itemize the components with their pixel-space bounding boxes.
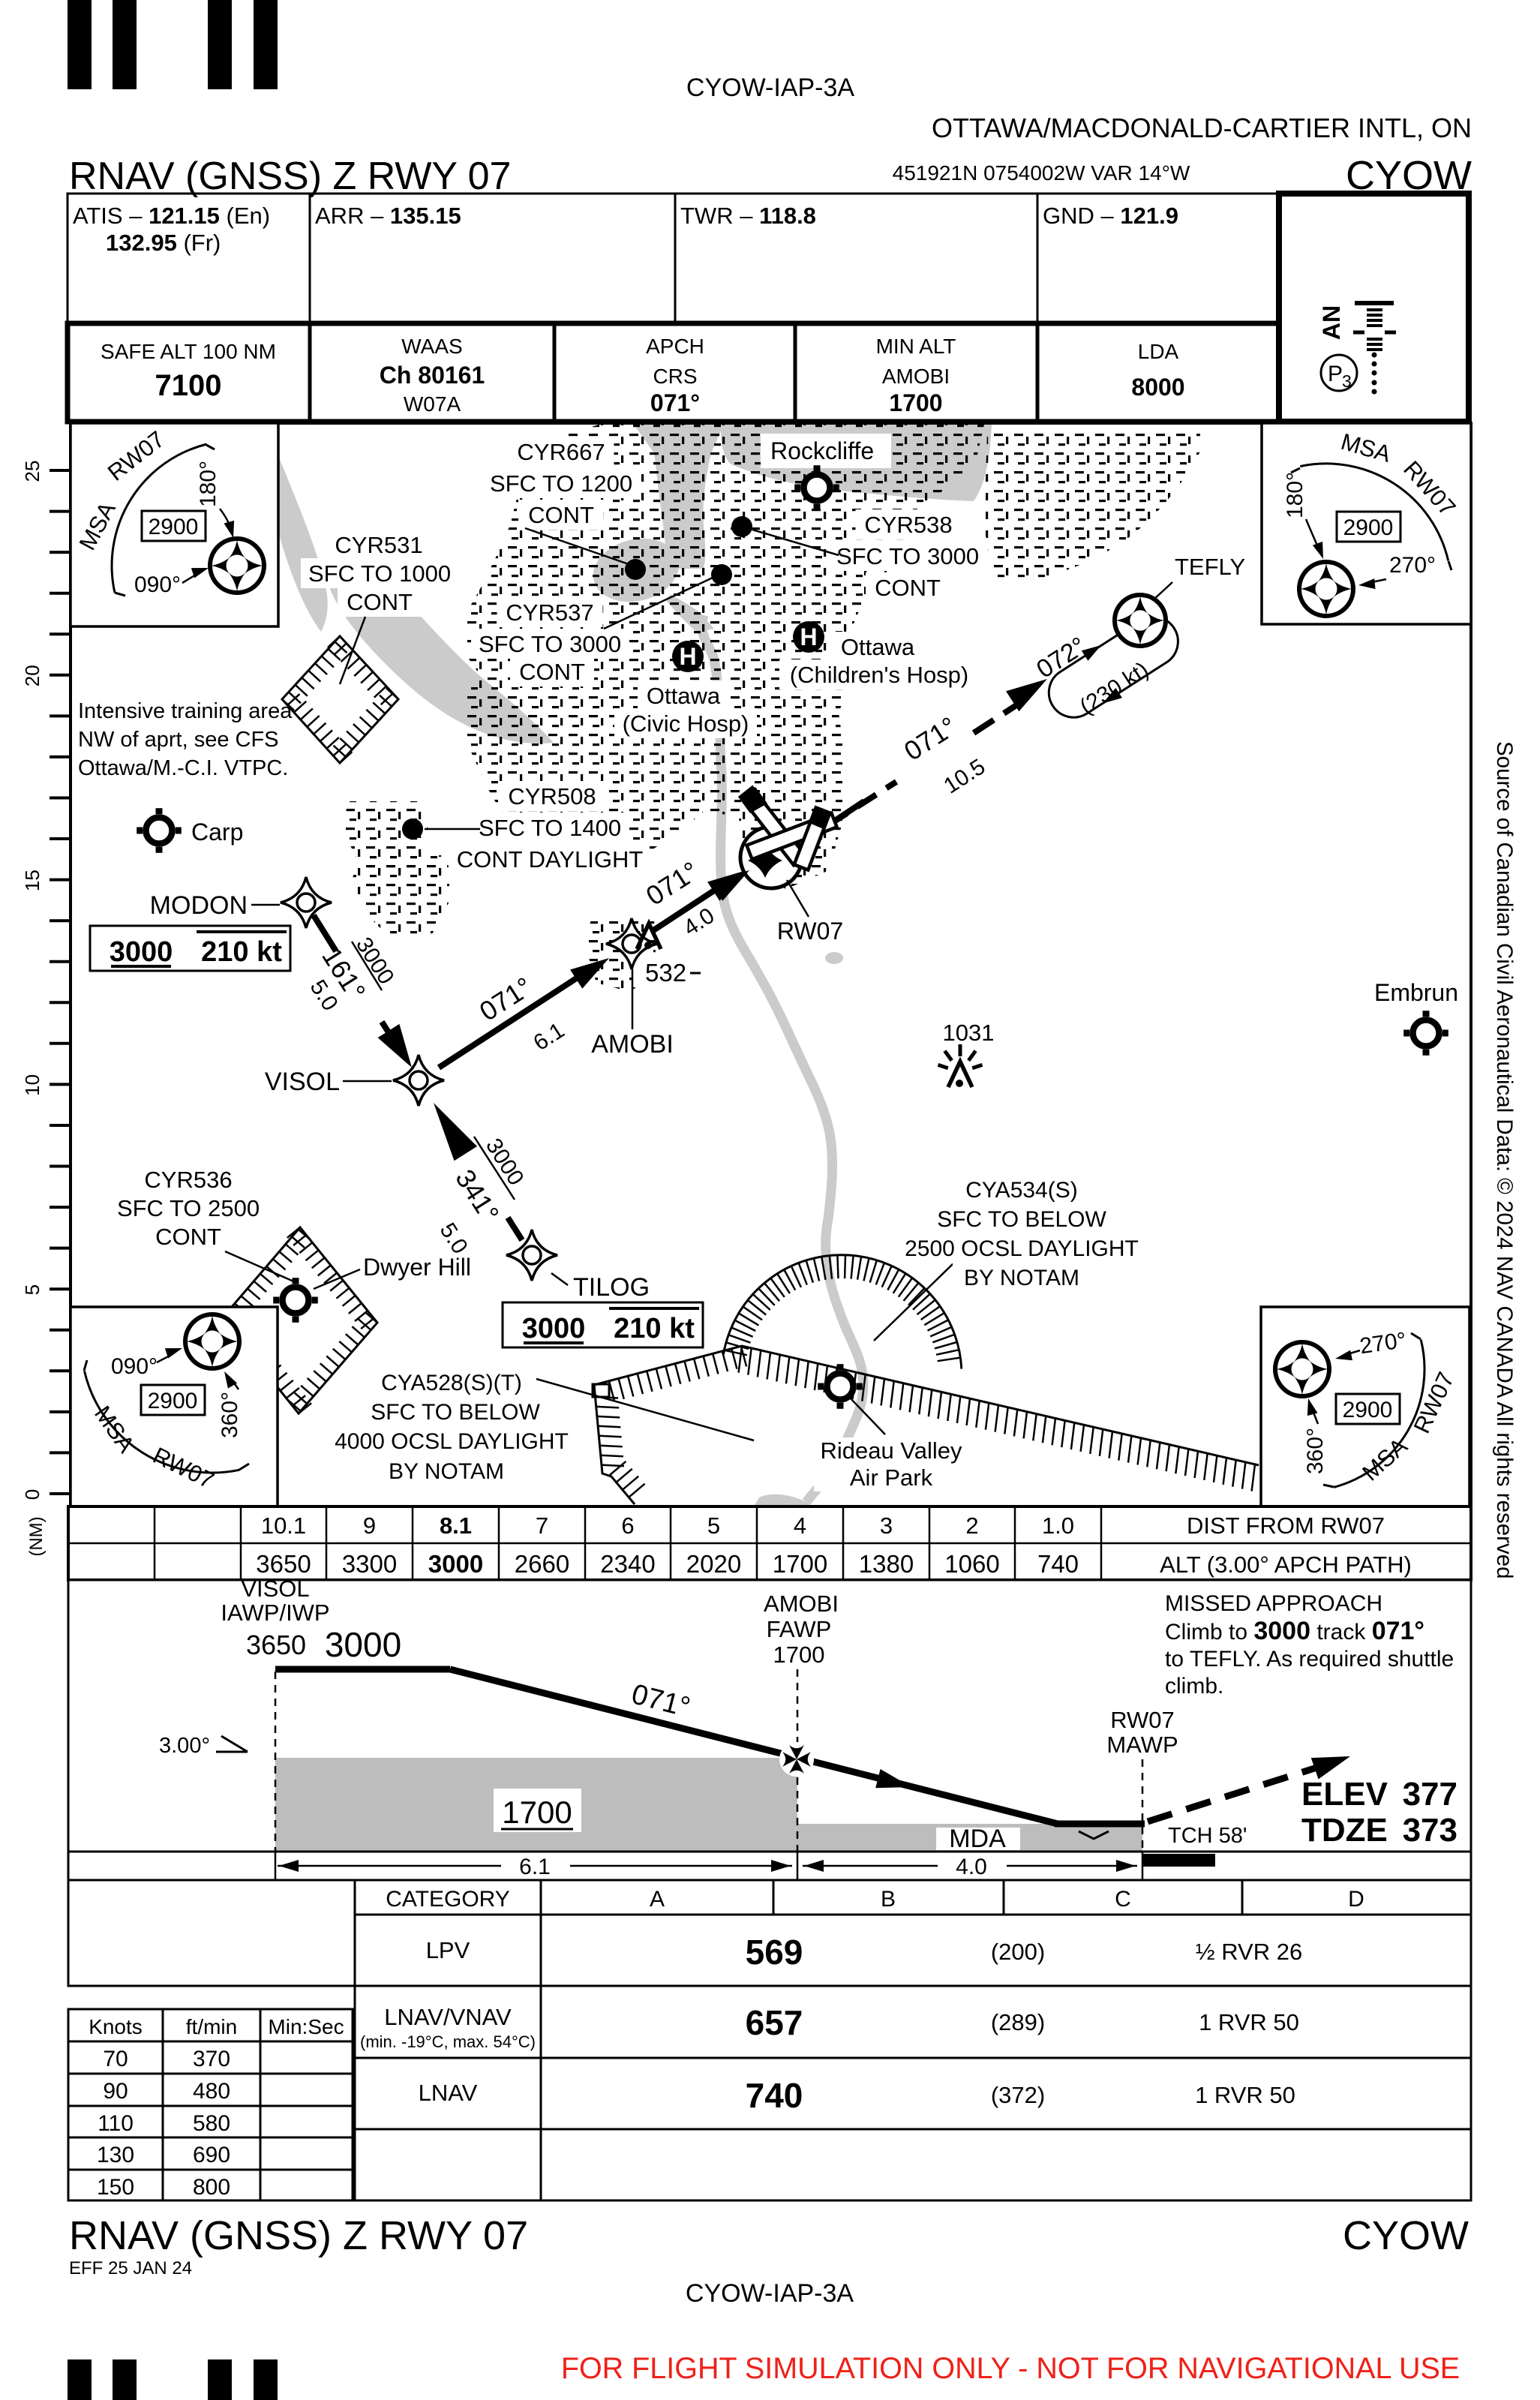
svg-text:690: 690 xyxy=(193,2143,230,2167)
svg-text:9: 9 xyxy=(363,1512,376,1539)
svg-text:800: 800 xyxy=(193,2175,230,2200)
svg-text:1060: 1060 xyxy=(944,1550,999,1578)
svg-text:GND – 121.9: GND – 121.9 xyxy=(1043,203,1178,229)
svg-text:3.00°: 3.00° xyxy=(159,1734,210,1758)
svg-text:H: H xyxy=(800,623,817,650)
svg-text:3000: 3000 xyxy=(428,1550,483,1578)
svg-text:180°: 180° xyxy=(196,461,221,507)
svg-text:Rideau Valley: Rideau Valley xyxy=(821,1437,962,1464)
svg-text:SFC TO BELOW: SFC TO BELOW xyxy=(371,1400,540,1425)
svg-text:CONT: CONT xyxy=(347,589,413,615)
svg-text:SFC TO BELOW: SFC TO BELOW xyxy=(937,1207,1106,1232)
svg-text:AN: AN xyxy=(1318,305,1345,340)
svg-text:Carp: Carp xyxy=(191,819,243,846)
svg-text:130: 130 xyxy=(97,2143,134,2167)
svg-text:Embrun: Embrun xyxy=(1374,979,1458,1006)
svg-text:1 RVR 50: 1 RVR 50 xyxy=(1199,2009,1299,2035)
svg-text:6: 6 xyxy=(621,1512,634,1539)
svg-text:0: 0 xyxy=(21,1489,44,1500)
svg-text:(372): (372) xyxy=(991,2082,1045,2108)
svg-text:CYR531: CYR531 xyxy=(335,532,422,558)
svg-text:FOR FLIGHT SIMULATION ONLY - N: FOR FLIGHT SIMULATION ONLY - NOT FOR NAV… xyxy=(561,2352,1460,2385)
svg-text:373: 373 xyxy=(1403,1812,1457,1849)
svg-text:3650: 3650 xyxy=(256,1550,311,1578)
svg-text:1700: 1700 xyxy=(502,1795,572,1830)
svg-text:LPV: LPV xyxy=(426,1937,470,1963)
svg-text:MIN ALT: MIN ALT xyxy=(876,335,956,358)
svg-text:APCH: APCH xyxy=(646,335,704,358)
svg-text:BY NOTAM: BY NOTAM xyxy=(389,1459,504,1484)
svg-text:climb.: climb. xyxy=(1165,1674,1223,1699)
svg-text:8000: 8000 xyxy=(1131,374,1184,401)
svg-text:H: H xyxy=(679,643,696,670)
svg-text:(200): (200) xyxy=(991,1939,1045,1965)
svg-text:2340: 2340 xyxy=(600,1550,655,1578)
svg-text:3: 3 xyxy=(1342,371,1352,391)
svg-text:370: 370 xyxy=(193,2047,230,2071)
svg-text:2020: 2020 xyxy=(686,1550,741,1578)
svg-text:4: 4 xyxy=(794,1512,806,1539)
svg-text:2900: 2900 xyxy=(149,515,199,539)
svg-text:TWR – 118.8: TWR – 118.8 xyxy=(680,203,816,229)
svg-text:(NM): (NM) xyxy=(26,1516,47,1556)
svg-text:SFC TO 2500: SFC TO 2500 xyxy=(117,1195,260,1221)
svg-text:2660: 2660 xyxy=(515,1550,569,1578)
svg-text:270°: 270° xyxy=(1389,553,1436,578)
svg-text:3650: 3650 xyxy=(246,1630,306,1660)
svg-text:090°: 090° xyxy=(134,572,181,597)
svg-text:RNAV (GNSS) Z RWY 07: RNAV (GNSS) Z RWY 07 xyxy=(69,155,511,198)
svg-text:ft/min: ft/min xyxy=(186,2015,237,2038)
svg-text:IAWP/IWP: IAWP/IWP xyxy=(221,1599,329,1626)
svg-text:Min:Sec: Min:Sec xyxy=(268,2015,344,2038)
svg-text:FAWP: FAWP xyxy=(767,1616,832,1642)
svg-text:3000: 3000 xyxy=(522,1313,586,1344)
svg-text:3000: 3000 xyxy=(325,1625,401,1664)
svg-text:AMOBI: AMOBI xyxy=(591,1030,674,1059)
svg-text:OTTAWA/MACDONALD-CARTIER INTL,: OTTAWA/MACDONALD-CARTIER INTL, ON xyxy=(932,113,1472,143)
svg-text:210 kt: 210 kt xyxy=(614,1313,695,1344)
svg-text:740: 740 xyxy=(746,2076,803,2115)
svg-text:½ RVR 26: ½ RVR 26 xyxy=(1196,1939,1302,1965)
svg-text:360°: 360° xyxy=(218,1392,242,1438)
svg-text:(Children's Hosp): (Children's Hosp) xyxy=(790,662,969,688)
svg-text:RNAV (GNSS) Z RWY 07: RNAV (GNSS) Z RWY 07 xyxy=(69,2213,528,2258)
svg-text:740: 740 xyxy=(1037,1550,1079,1578)
svg-text:2500 OCSL DAYLIGHT: 2500 OCSL DAYLIGHT xyxy=(905,1236,1139,1261)
svg-text:1.0: 1.0 xyxy=(1042,1512,1074,1539)
svg-text:SFC TO 1000: SFC TO 1000 xyxy=(308,560,451,587)
svg-text:P: P xyxy=(1328,362,1343,386)
svg-text:EFF 25 JAN 24: EFF 25 JAN 24 xyxy=(69,2258,192,2278)
svg-text:to TEFLY. As required shuttle: to TEFLY. As required shuttle xyxy=(1165,1647,1454,1672)
svg-text:AMOBI: AMOBI xyxy=(882,365,950,388)
svg-text:LNAV/VNAV: LNAV/VNAV xyxy=(384,2004,512,2030)
svg-text:90: 90 xyxy=(103,2079,128,2104)
svg-text:SFC TO 1200: SFC TO 1200 xyxy=(490,470,632,497)
svg-text:580: 580 xyxy=(193,2111,230,2136)
svg-text:Intensive training area: Intensive training area xyxy=(78,699,293,723)
svg-text:BY NOTAM: BY NOTAM xyxy=(964,1266,1079,1290)
svg-text:CYR537: CYR537 xyxy=(506,599,593,626)
svg-text:180°: 180° xyxy=(1283,472,1307,518)
svg-text:2900: 2900 xyxy=(1343,515,1394,540)
svg-text:W07A: W07A xyxy=(404,392,461,416)
svg-text:CYA534(S): CYA534(S) xyxy=(965,1178,1078,1203)
svg-text:1031: 1031 xyxy=(943,1020,995,1046)
svg-text:MISSED APPROACH: MISSED APPROACH xyxy=(1165,1591,1382,1616)
svg-text:Source of Canadian Civil Aeron: Source of Canadian Civil Aeronautical Da… xyxy=(1492,741,1517,1579)
svg-text:3: 3 xyxy=(880,1512,893,1539)
svg-text:4.0: 4.0 xyxy=(956,1855,987,1879)
svg-text:20: 20 xyxy=(21,665,44,686)
svg-text:2900: 2900 xyxy=(148,1389,198,1413)
svg-text:Ottawa/M.-C.I. VTPC.: Ottawa/M.-C.I. VTPC. xyxy=(78,756,288,780)
svg-text:532: 532 xyxy=(645,959,686,987)
svg-text:VISOL: VISOL xyxy=(265,1068,340,1096)
svg-text:132.95 (Fr): 132.95 (Fr) xyxy=(106,230,221,256)
svg-text:360°: 360° xyxy=(1303,1428,1328,1474)
svg-text:569: 569 xyxy=(746,1933,803,1972)
svg-text:480: 480 xyxy=(193,2079,230,2104)
svg-text:Ottawa: Ottawa xyxy=(841,634,915,660)
svg-text:MAWP: MAWP xyxy=(1106,1732,1178,1758)
svg-text:10.1: 10.1 xyxy=(261,1512,306,1539)
svg-text:CONT: CONT xyxy=(519,659,585,685)
svg-text:6.1: 6.1 xyxy=(519,1855,551,1879)
svg-text:Rockcliffe: Rockcliffe xyxy=(770,437,874,464)
svg-text:2900: 2900 xyxy=(1343,1398,1393,1422)
svg-text:10: 10 xyxy=(21,1074,44,1096)
svg-text:7: 7 xyxy=(536,1512,548,1539)
svg-text:CONT: CONT xyxy=(528,502,594,528)
svg-text:CYOW: CYOW xyxy=(1343,2213,1469,2258)
svg-text:MDA: MDA xyxy=(949,1825,1006,1853)
svg-text:150: 150 xyxy=(97,2175,134,2200)
svg-text:CYR508: CYR508 xyxy=(508,783,596,810)
svg-text:LDA: LDA xyxy=(1138,340,1179,363)
svg-text:RW07: RW07 xyxy=(777,918,843,945)
svg-text:WAAS: WAAS xyxy=(401,335,462,358)
svg-text:A: A xyxy=(650,1887,665,1912)
svg-text:210 kt: 210 kt xyxy=(201,936,282,968)
svg-text:RW07: RW07 xyxy=(1110,1707,1175,1733)
svg-text:1 RVR 50: 1 RVR 50 xyxy=(1195,2082,1295,2108)
svg-text:1700: 1700 xyxy=(773,1642,825,1668)
svg-text:110: 110 xyxy=(98,2111,134,2136)
svg-text:377: 377 xyxy=(1403,1776,1457,1813)
svg-text:ALT (3.00° APCH PATH): ALT (3.00° APCH PATH) xyxy=(1160,1551,1412,1578)
svg-text:Air Park: Air Park xyxy=(850,1464,933,1491)
svg-text:CRS: CRS xyxy=(653,365,697,388)
svg-text:Ottawa: Ottawa xyxy=(647,683,721,709)
svg-text:ARR – 135.15: ARR – 135.15 xyxy=(315,203,461,229)
svg-text:NW of aprt, see CFS: NW of aprt, see CFS xyxy=(78,728,279,752)
svg-text:3000: 3000 xyxy=(110,936,173,968)
svg-text:CONT: CONT xyxy=(155,1224,221,1250)
svg-text:D: D xyxy=(1348,1887,1364,1912)
svg-text:5: 5 xyxy=(21,1284,44,1295)
svg-text:LNAV: LNAV xyxy=(419,2080,478,2106)
svg-text:B: B xyxy=(881,1887,896,1912)
svg-text:SFC TO 1400: SFC TO 1400 xyxy=(479,815,621,841)
svg-text:8.1: 8.1 xyxy=(440,1512,472,1539)
svg-text:CYOW-IAP-3A: CYOW-IAP-3A xyxy=(686,2279,854,2308)
svg-text:CONT: CONT xyxy=(875,575,941,601)
svg-text:CYR538: CYR538 xyxy=(864,512,952,538)
svg-text:2: 2 xyxy=(965,1512,978,1539)
svg-text:Knots: Knots xyxy=(89,2015,143,2038)
svg-text:CYOW-IAP-3A: CYOW-IAP-3A xyxy=(686,74,855,102)
svg-text:DIST FROM RW07: DIST FROM RW07 xyxy=(1187,1512,1385,1539)
svg-text:CYA528(S)(T): CYA528(S)(T) xyxy=(381,1371,522,1395)
svg-text:1700: 1700 xyxy=(889,389,942,416)
svg-text:TDZE: TDZE xyxy=(1301,1812,1388,1849)
svg-text:090°: 090° xyxy=(111,1354,158,1379)
svg-text:TILOG: TILOG xyxy=(573,1273,650,1302)
svg-text:7100: 7100 xyxy=(155,369,222,402)
svg-text:AMOBI: AMOBI xyxy=(764,1590,839,1617)
svg-text:5: 5 xyxy=(707,1512,720,1539)
svg-text:(289): (289) xyxy=(991,2009,1045,2035)
svg-text:TCH 58': TCH 58' xyxy=(1168,1824,1247,1848)
svg-text:SFC TO 3000: SFC TO 3000 xyxy=(836,543,979,569)
svg-text:1700: 1700 xyxy=(773,1550,827,1578)
svg-text:SAFE ALT 100 NM: SAFE ALT 100 NM xyxy=(101,340,276,363)
svg-text:TEFLY: TEFLY xyxy=(1175,554,1245,580)
svg-text:ELEV: ELEV xyxy=(1301,1776,1388,1813)
svg-text:VISOL: VISOL xyxy=(241,1575,309,1602)
svg-text:25: 25 xyxy=(21,461,44,482)
svg-text:1380: 1380 xyxy=(859,1550,914,1578)
svg-text:SFC TO 3000: SFC TO 3000 xyxy=(479,631,621,657)
svg-text:CYR667: CYR667 xyxy=(517,439,605,465)
svg-text:4000 OCSL DAYLIGHT: 4000 OCSL DAYLIGHT xyxy=(335,1429,569,1454)
svg-text:(min. -19°C, max. 54°C): (min. -19°C, max. 54°C) xyxy=(360,2032,536,2051)
svg-text:15: 15 xyxy=(21,870,44,891)
svg-text:MODON: MODON xyxy=(150,891,248,920)
svg-text:657: 657 xyxy=(746,2003,803,2042)
svg-text:Dwyer Hill: Dwyer Hill xyxy=(363,1254,471,1281)
svg-text:Ch 80161: Ch 80161 xyxy=(380,362,485,389)
svg-text:CONT DAYLIGHT: CONT DAYLIGHT xyxy=(457,846,644,873)
svg-text:ATIS – 121.15 (En): ATIS – 121.15 (En) xyxy=(73,203,270,229)
svg-text:071°: 071° xyxy=(650,389,700,416)
svg-text:CYR536: CYR536 xyxy=(144,1167,232,1193)
svg-text:CATEGORY: CATEGORY xyxy=(386,1887,510,1912)
svg-text:451921N 0754002W VAR 14°W: 451921N 0754002W VAR 14°W xyxy=(893,161,1190,185)
svg-text:Climb to 3000 track 071°: Climb to 3000 track 071° xyxy=(1165,1617,1424,1645)
svg-text:70: 70 xyxy=(103,2047,128,2071)
svg-text:3300: 3300 xyxy=(342,1550,397,1578)
svg-text:C: C xyxy=(1115,1887,1131,1912)
svg-text:(Civic Hosp): (Civic Hosp) xyxy=(623,710,749,737)
